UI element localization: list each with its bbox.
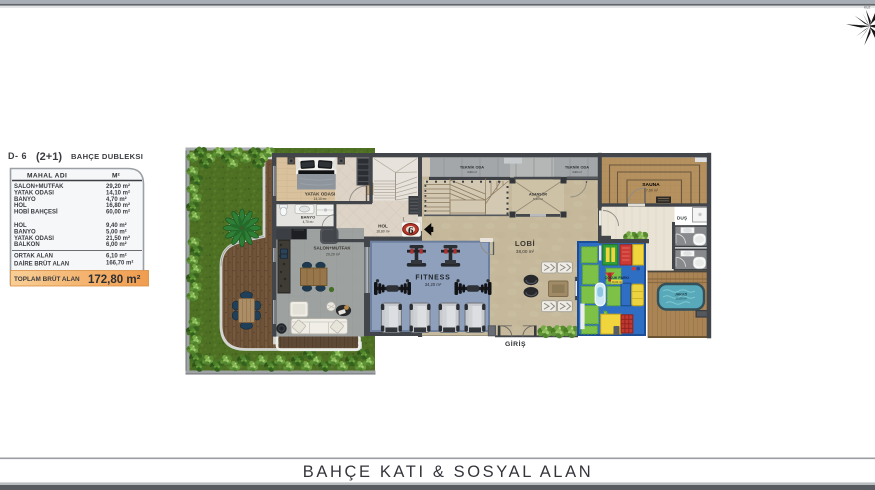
svg-text:FITNESS: FITNESS bbox=[415, 275, 450, 282]
svg-text:ÇOCUK PARKI: ÇOCUK PARKI bbox=[605, 276, 629, 280]
svg-text:6,00 m²: 6,00 m² bbox=[106, 241, 127, 248]
svg-text:DAİRE BRÜT ALAN: DAİRE BRÜT ALAN bbox=[14, 261, 69, 268]
svg-text:16,80 m²: 16,80 m² bbox=[376, 230, 390, 234]
svg-text:GİRİŞ: GİRİŞ bbox=[505, 340, 526, 348]
svg-text:YATAK ODASI: YATAK ODASI bbox=[14, 191, 54, 197]
svg-text:14,10 m²: 14,10 m² bbox=[313, 197, 327, 201]
svg-text:SALON+MUTFAK: SALON+MUTFAK bbox=[14, 184, 64, 190]
svg-text:38,00 m²: 38,00 m² bbox=[516, 249, 535, 254]
svg-text:TEKNİK ODA: TEKNİK ODA bbox=[460, 165, 484, 170]
svg-text:BANYO: BANYO bbox=[14, 230, 36, 236]
svg-text:34,20 m²: 34,20 m² bbox=[425, 282, 442, 287]
svg-text:D- 6: D- 6 bbox=[8, 151, 27, 161]
svg-text:BALKON: BALKON bbox=[14, 242, 40, 248]
svg-text:16,80 m²: 16,80 m² bbox=[106, 202, 130, 209]
svg-text:21,50 m²: 21,50 m² bbox=[106, 235, 130, 242]
svg-text:HOL: HOL bbox=[14, 223, 27, 229]
svg-text:6: 6 bbox=[408, 225, 414, 237]
svg-text:(2+1): (2+1) bbox=[36, 151, 62, 163]
svg-text:17,60 m²: 17,60 m² bbox=[644, 189, 659, 193]
svg-text:5,00 m²: 5,00 m² bbox=[106, 229, 127, 236]
svg-text:29,20 m²: 29,20 m² bbox=[106, 183, 130, 190]
svg-text:172,80 m²: 172,80 m² bbox=[88, 274, 141, 286]
svg-text:10,00 m²: 10,00 m² bbox=[611, 280, 622, 284]
svg-text:SALON+MUTFAK: SALON+MUTFAK bbox=[313, 246, 351, 251]
svg-text:KUZ: KUZ bbox=[864, 6, 870, 10]
svg-text:HOL: HOL bbox=[378, 224, 388, 229]
svg-text:5,40 m²: 5,40 m² bbox=[533, 197, 543, 201]
svg-text:DUŞ: DUŞ bbox=[677, 216, 688, 222]
svg-text:ASANSÖR: ASANSÖR bbox=[529, 192, 547, 197]
svg-text:29,20 m²: 29,20 m² bbox=[326, 253, 341, 257]
svg-text:166,70 m²: 166,70 m² bbox=[106, 260, 133, 267]
svg-text:HOL: HOL bbox=[14, 203, 27, 209]
svg-text:YATAK ODASI: YATAK ODASI bbox=[305, 192, 336, 197]
svg-text:SAUNA: SAUNA bbox=[642, 182, 660, 188]
svg-text:LOBİ: LOBİ bbox=[515, 239, 535, 248]
svg-text:10,00 m²: 10,00 m² bbox=[675, 297, 686, 301]
svg-text:6,10 m²: 6,10 m² bbox=[106, 253, 127, 260]
svg-text:ORTAK ALAN: ORTAK ALAN bbox=[14, 254, 53, 260]
svg-text:9,40 m²: 9,40 m² bbox=[106, 222, 127, 229]
svg-text:4,70 m²: 4,70 m² bbox=[106, 196, 127, 203]
svg-text:4,70 m²: 4,70 m² bbox=[303, 220, 314, 224]
svg-text:TEKNİK ODA: TEKNİK ODA bbox=[565, 165, 589, 170]
svg-text:HOBİ BAHÇESİ: HOBİ BAHÇESİ bbox=[14, 209, 58, 216]
svg-text:14,10 m²: 14,10 m² bbox=[106, 190, 130, 197]
svg-text:M²: M² bbox=[112, 173, 120, 180]
svg-text:4,90 m²: 4,90 m² bbox=[467, 170, 477, 174]
svg-text:BAHÇE KATI & SOSYAL ALAN: BAHÇE KATI & SOSYAL ALAN bbox=[303, 463, 593, 481]
svg-text:60,00 m²: 60,00 m² bbox=[106, 209, 130, 216]
svg-text:BAHÇE DUBLEKSI: BAHÇE DUBLEKSI bbox=[71, 152, 143, 161]
svg-text:MAHAL ADI: MAHAL ADI bbox=[27, 173, 67, 180]
svg-text:TOPLAM BRÜT ALAN: TOPLAM BRÜT ALAN bbox=[14, 274, 80, 283]
svg-text:BANYO: BANYO bbox=[301, 215, 315, 220]
svg-text:4,90 m²: 4,90 m² bbox=[572, 170, 582, 174]
